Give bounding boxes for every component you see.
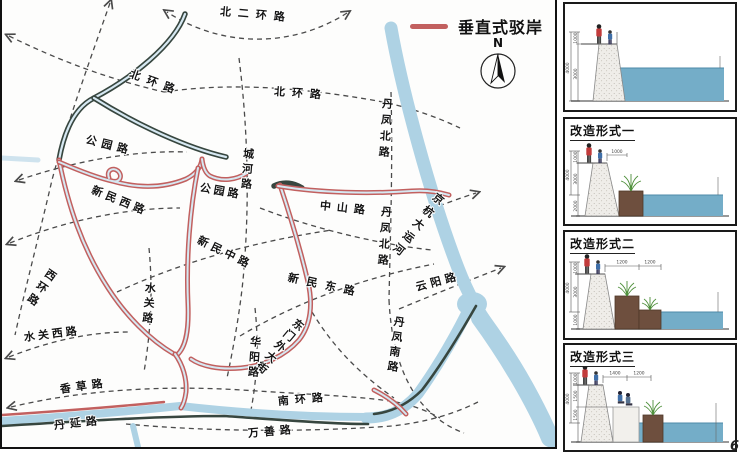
cross-section-panel-existing: 4000 1000 3000 [563,2,737,112]
planter-box [639,310,661,329]
dimension-label: 1500 [573,409,579,420]
dimension-label: 3000 [573,173,579,184]
dimension-label: 1500 [573,390,579,401]
vertical-revetment-legend-swatch [410,24,448,29]
water-area [620,68,724,101]
dashed-roads [9,3,501,433]
dimension-label: 1200 [644,260,655,266]
dimension-label: 1000 [573,32,579,43]
planter-box [615,296,639,329]
vertical-revetment-canals [2,159,449,415]
dimension-label: 1000 [573,373,579,384]
dimension-label: 1000 [573,314,579,325]
cross-section-panel-form3: 改造形式三 [563,343,737,452]
dimension-label: 4000 [565,282,571,293]
planter-box [619,191,643,216]
cross-section-panel-form1: 改造形式一 [563,117,737,226]
map-canvas [2,0,555,447]
panel-title: 改造形式三 [570,348,635,367]
water-area [643,195,723,216]
dimension-label: 1200 [633,371,644,377]
water-area [661,312,723,329]
dimension-label: 4000 [565,62,571,73]
panel-title: 改造形式二 [570,235,635,254]
water-area [2,28,554,447]
legend-label: 垂直式驳岸 [458,14,543,38]
dimension-label: 1000 [573,262,579,273]
panel-title: 改造形式一 [570,122,635,141]
dimension-label: 1400 [609,371,620,377]
dimension-label: 3000 [573,68,579,79]
dimension-label: 4000 [565,169,571,180]
figure-page: 北二环路北环路北环路公园路城河路公园路新民西路中山路丹凤北路丹凤北路京杭大运河云… [0,0,742,455]
dimension-label: 1000 [573,151,579,162]
city-canal-map: 北二环路北环路北环路公园路城河路公园路新民西路中山路丹凤北路丹凤北路京杭大运河云… [0,0,557,449]
dimension-label: 2000 [573,200,579,211]
legend: 垂直式驳岸 [410,14,543,38]
terrace-step [613,407,639,442]
cross-section-panel-form2: 改造形式二 [563,230,737,340]
dimension-label: 3000 [573,286,579,297]
dimension-label: 4000 [565,393,571,404]
page-number: 6 [730,439,739,454]
planter-box [643,415,663,442]
dimension-label: 1200 [616,260,627,266]
dimension-label: 1000 [611,149,622,155]
